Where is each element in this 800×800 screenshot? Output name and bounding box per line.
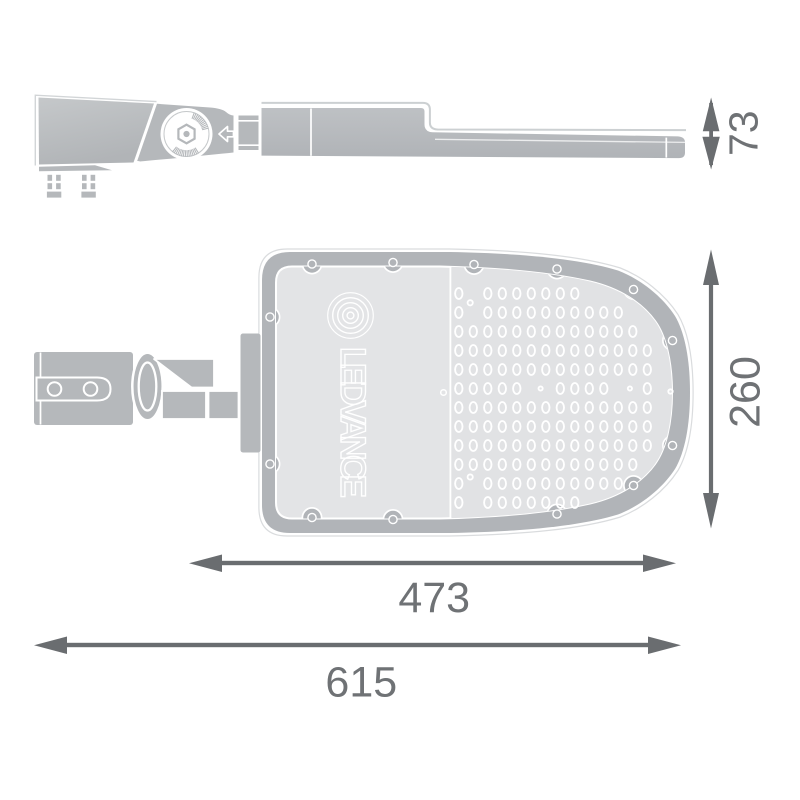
svg-text:73: 73 (720, 110, 766, 156)
svg-text:260: 260 (722, 356, 770, 428)
svg-text:473: 473 (398, 574, 470, 622)
svg-text:615: 615 (325, 658, 397, 706)
svg-text:LEDVANCE: LEDVANCE (333, 347, 372, 498)
